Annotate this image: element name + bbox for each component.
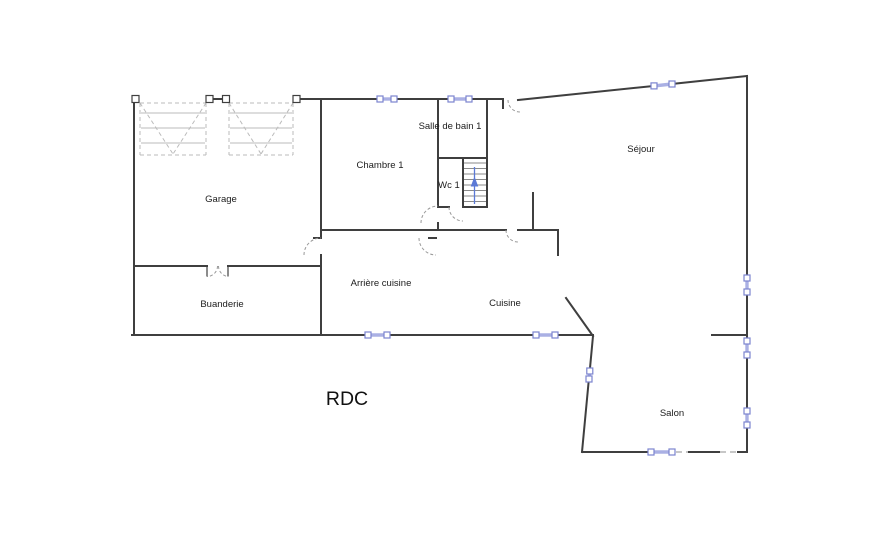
floor-title: RDC xyxy=(326,388,368,410)
room-label-arriere-cuisine: Arrière cuisine xyxy=(351,278,412,289)
wall-post xyxy=(206,96,213,103)
room-labels: Garage Chambre 1 Salle de bain 1 Wc 1 Sé… xyxy=(200,121,684,419)
room-label-wc-1: Wc 1 xyxy=(438,180,460,191)
room-label-buanderie: Buanderie xyxy=(200,299,243,310)
window-salle-de-bain xyxy=(448,96,472,102)
room-label-cuisine: Cuisine xyxy=(489,298,521,309)
entry-door-arc xyxy=(508,100,520,112)
arriere-cuisine-door-arc xyxy=(419,238,436,255)
wall-post xyxy=(223,96,230,103)
stairs-up-arrow-icon xyxy=(471,177,479,187)
cuisine-door-arc xyxy=(506,230,518,242)
garage-door-arc xyxy=(304,238,321,255)
wc-door-arc xyxy=(449,207,463,221)
garage-door-outline xyxy=(140,103,293,155)
wall-post xyxy=(132,96,139,103)
window-arriere-cuisine xyxy=(365,332,390,338)
garage-door-symbols xyxy=(140,103,293,155)
room-label-salle-de-bain-1: Salle de bain 1 xyxy=(419,121,482,132)
chambre-door-arc xyxy=(421,206,438,223)
floor-plan: Garage Chambre 1 Salle de bain 1 Wc 1 Sé… xyxy=(0,0,880,557)
outer-walls xyxy=(132,76,747,452)
room-label-salon: Salon xyxy=(660,408,684,419)
window-salon-east-2 xyxy=(744,408,750,428)
floor-plan-svg: Garage Chambre 1 Salle de bain 1 Wc 1 Sé… xyxy=(0,0,880,557)
windows xyxy=(365,81,750,455)
room-label-sejour: Séjour xyxy=(627,144,654,155)
wall-post xyxy=(293,96,300,103)
buanderie-double-door-arcs xyxy=(207,266,228,277)
garage-door-slats xyxy=(141,113,292,143)
walls xyxy=(132,76,747,452)
window-salon-east-1 xyxy=(744,338,750,358)
window-sejour-slope xyxy=(651,81,675,89)
room-label-chambre-1: Chambre 1 xyxy=(357,160,404,171)
stairs xyxy=(463,158,487,207)
window-salon-south xyxy=(648,449,675,455)
window-sejour-east xyxy=(744,275,750,295)
room-label-garage: Garage xyxy=(205,194,237,205)
window-chambre xyxy=(377,96,397,102)
window-salon-west xyxy=(586,368,593,382)
window-cuisine xyxy=(533,332,558,338)
